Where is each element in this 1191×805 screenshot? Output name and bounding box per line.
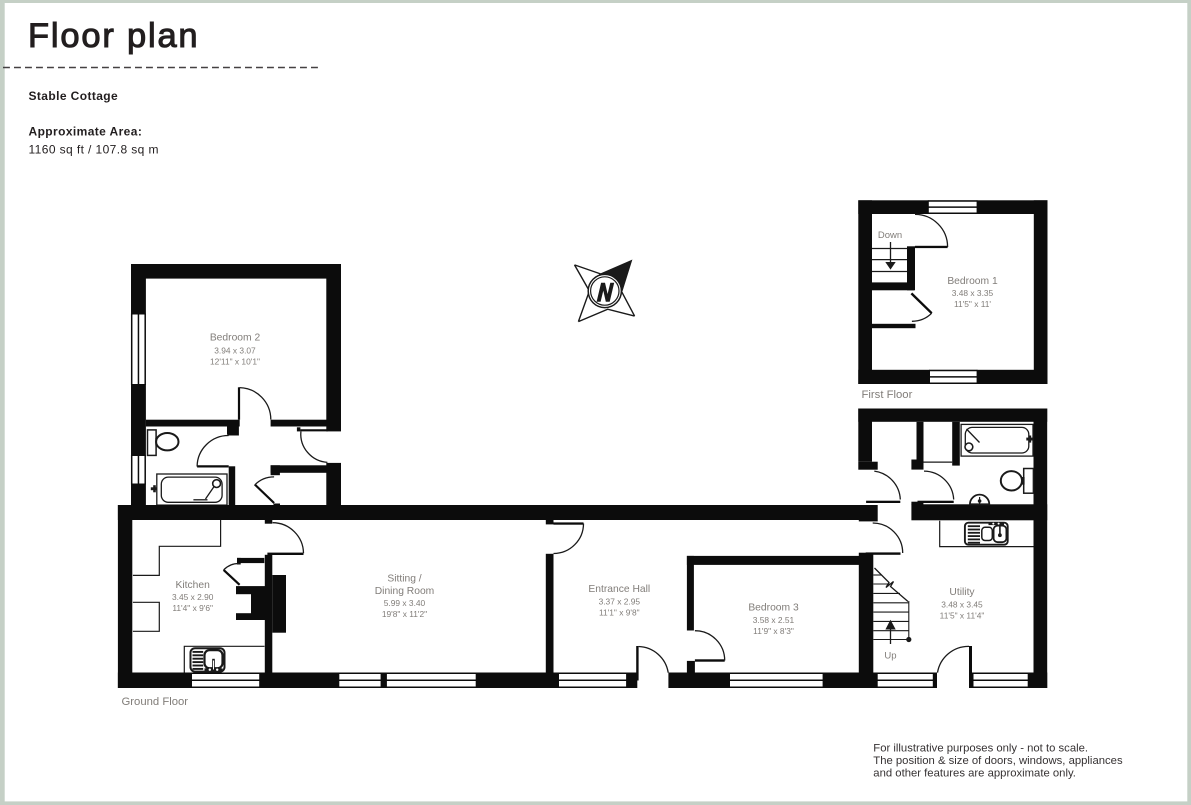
svg-text:First Floor: First Floor (862, 389, 913, 401)
svg-text:3.45 x 2.90: 3.45 x 2.90 (172, 592, 214, 602)
svg-text:Stable Cottage: Stable Cottage (29, 89, 119, 103)
svg-text:3.37 x 2.95: 3.37 x 2.95 (599, 597, 641, 607)
svg-text:Sitting /: Sitting / (387, 574, 421, 585)
svg-text:Dining Room: Dining Room (375, 586, 435, 597)
svg-text:12'11" x 10'1": 12'11" x 10'1" (210, 357, 260, 367)
svg-text:For illustrative purposes only: For illustrative purposes only - not to … (873, 743, 1088, 755)
svg-text:19'8" x 11'2": 19'8" x 11'2" (382, 609, 427, 619)
svg-text:Down: Down (878, 230, 902, 241)
svg-text:Kitchen: Kitchen (176, 580, 211, 591)
svg-text:Ground Floor: Ground Floor (122, 696, 189, 708)
svg-text:1160 sq ft / 107.8 sq m: 1160 sq ft / 107.8 sq m (29, 143, 159, 157)
svg-text:Up: Up (884, 651, 896, 662)
svg-text:11'4" x 9'6": 11'4" x 9'6" (172, 603, 213, 613)
svg-text:The position & size of doors,: The position & size of doors, windows, a… (873, 755, 1123, 767)
svg-text:Entrance Hall: Entrance Hall (588, 584, 650, 595)
svg-text:3.58 x 2.51: 3.58 x 2.51 (753, 615, 795, 625)
svg-text:11'5" x 11'4": 11'5" x 11'4" (940, 611, 985, 621)
svg-text:3.94 x 3.07: 3.94 x 3.07 (214, 346, 256, 356)
svg-text:Bedroom 2: Bedroom 2 (210, 333, 261, 344)
svg-text:11'5" x 11': 11'5" x 11' (954, 299, 991, 309)
svg-text:Approximate Area:: Approximate Area: (29, 125, 143, 139)
svg-text:3.48 x 3.45: 3.48 x 3.45 (941, 600, 983, 610)
svg-text:11'9" x 8'3": 11'9" x 8'3" (753, 626, 794, 636)
svg-text:11'1" x 9'8": 11'1" x 9'8" (599, 608, 640, 618)
svg-text:3.48 x 3.35: 3.48 x 3.35 (952, 288, 994, 298)
svg-text:Bedroom 1: Bedroom 1 (947, 276, 998, 287)
svg-text:and other features are approxi: and other features are approximate only. (873, 768, 1076, 780)
svg-text:Utility: Utility (949, 587, 975, 598)
svg-text:Floor plan: Floor plan (28, 17, 199, 55)
svg-text:Bedroom 3: Bedroom 3 (748, 603, 799, 614)
svg-text:5.99 x 3.40: 5.99 x 3.40 (384, 598, 426, 608)
